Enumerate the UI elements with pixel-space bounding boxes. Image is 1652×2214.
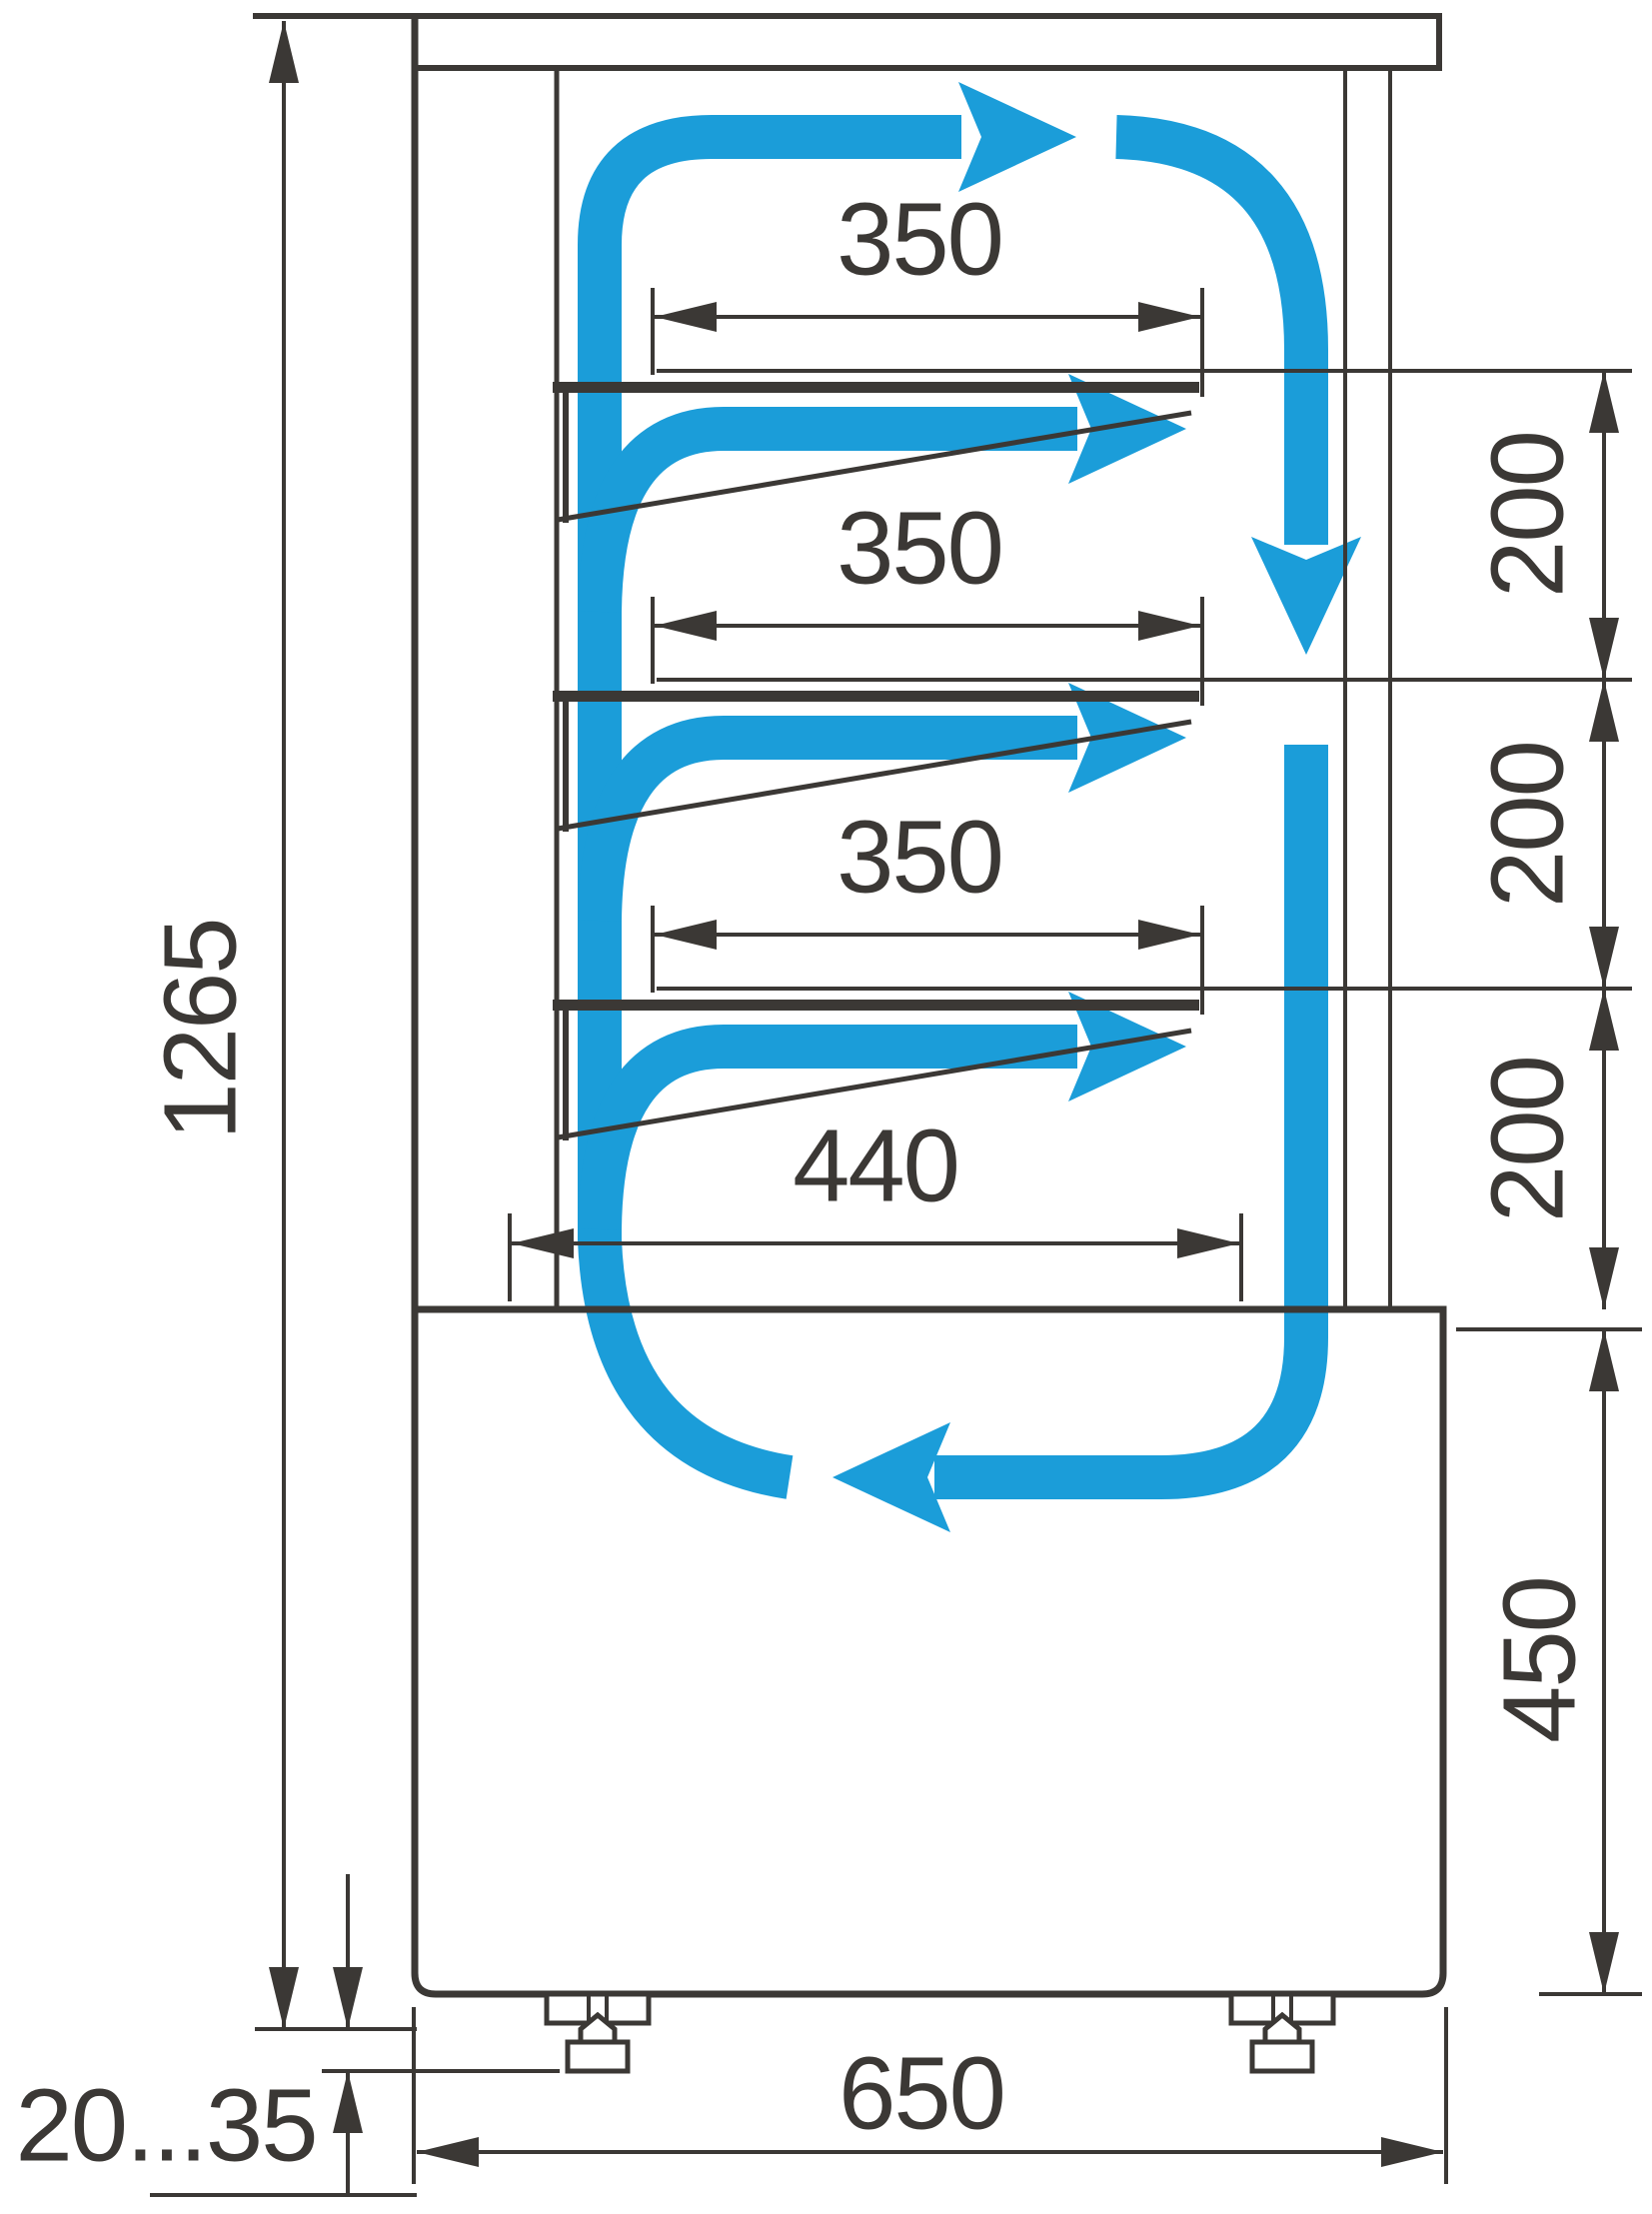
right-foot-pad (1252, 2042, 1312, 2071)
arrowhead-down-icon (1589, 618, 1619, 680)
dim-200-gap3: 200 (1470, 989, 1620, 1309)
arrowhead-right-icon (1381, 2137, 1443, 2167)
arrowhead-right-icon (1138, 920, 1200, 950)
dim-label-200-1: 200 (1470, 432, 1585, 598)
shelf-deck-3 (553, 1000, 1199, 1011)
dim-label-350-2: 350 (836, 491, 1002, 606)
arrowhead-down-icon (269, 1967, 299, 2029)
dim-200-gap2: 200 (1470, 680, 1620, 989)
dim-450: 450 (1482, 1329, 1620, 1994)
arrowhead-down-icon (333, 1967, 363, 2029)
arrowhead-up-icon (269, 21, 299, 83)
airflow-bottom-arrowhead-icon (832, 1422, 950, 1532)
dim-label-200-2: 200 (1470, 742, 1585, 908)
dim-label-1265: 1265 (143, 919, 258, 1139)
dim-label-200-3: 200 (1470, 1057, 1585, 1222)
arrowhead-right-icon (1138, 302, 1200, 332)
display-case-drawing: 350 350 350 440 (0, 0, 1652, 2214)
airflow-top-arrowhead-icon (958, 82, 1076, 192)
arrowhead-down-icon (1589, 927, 1619, 989)
dim-1265: 1265 (143, 21, 300, 2029)
left-foot (547, 1994, 649, 2071)
arrowhead-up-icon (333, 2071, 363, 2133)
drawing-canvas: 350 350 350 440 (0, 0, 1652, 2214)
arrowhead-up-icon (1589, 371, 1619, 433)
right-foot (1231, 1994, 1333, 2071)
dim-label-440: 440 (793, 1108, 958, 1223)
airflow-right-channel-upper (1116, 137, 1306, 545)
arrowhead-left-icon (512, 1228, 574, 1258)
arrowhead-left-icon (655, 611, 717, 641)
arrowhead-right-icon (1177, 1228, 1239, 1258)
dim-label-350-1: 350 (836, 182, 1002, 297)
dim-350-row1: 350 (653, 182, 1202, 398)
arrowhead-left-icon (655, 302, 717, 332)
dim-label-650: 650 (838, 2036, 1004, 2151)
dimensions: 350 350 350 440 (16, 21, 1643, 2195)
dim-350-row3: 350 (653, 800, 1202, 1016)
arrowhead-left-icon (417, 2137, 479, 2167)
arrowhead-up-icon (1589, 1329, 1619, 1391)
arrowhead-left-icon (655, 920, 717, 950)
arrowhead-up-icon (1589, 680, 1619, 742)
shelf-deck-1 (553, 382, 1199, 393)
dim-label-450: 450 (1482, 1577, 1597, 1743)
arrowhead-right-icon (1138, 611, 1200, 641)
dim-350-row2: 350 (653, 491, 1202, 707)
dim-label-350-3: 350 (836, 800, 1002, 915)
arrowhead-up-icon (1589, 989, 1619, 1051)
shelf-deck-2 (553, 691, 1199, 702)
dim-200-gap1: 200 (1470, 371, 1620, 680)
left-foot-pad (568, 2042, 628, 2071)
arrowhead-down-icon (1589, 1932, 1619, 1994)
arrowhead-down-icon (1589, 1247, 1619, 1309)
dim-label-foot-range: 20...35 (16, 2068, 317, 2183)
